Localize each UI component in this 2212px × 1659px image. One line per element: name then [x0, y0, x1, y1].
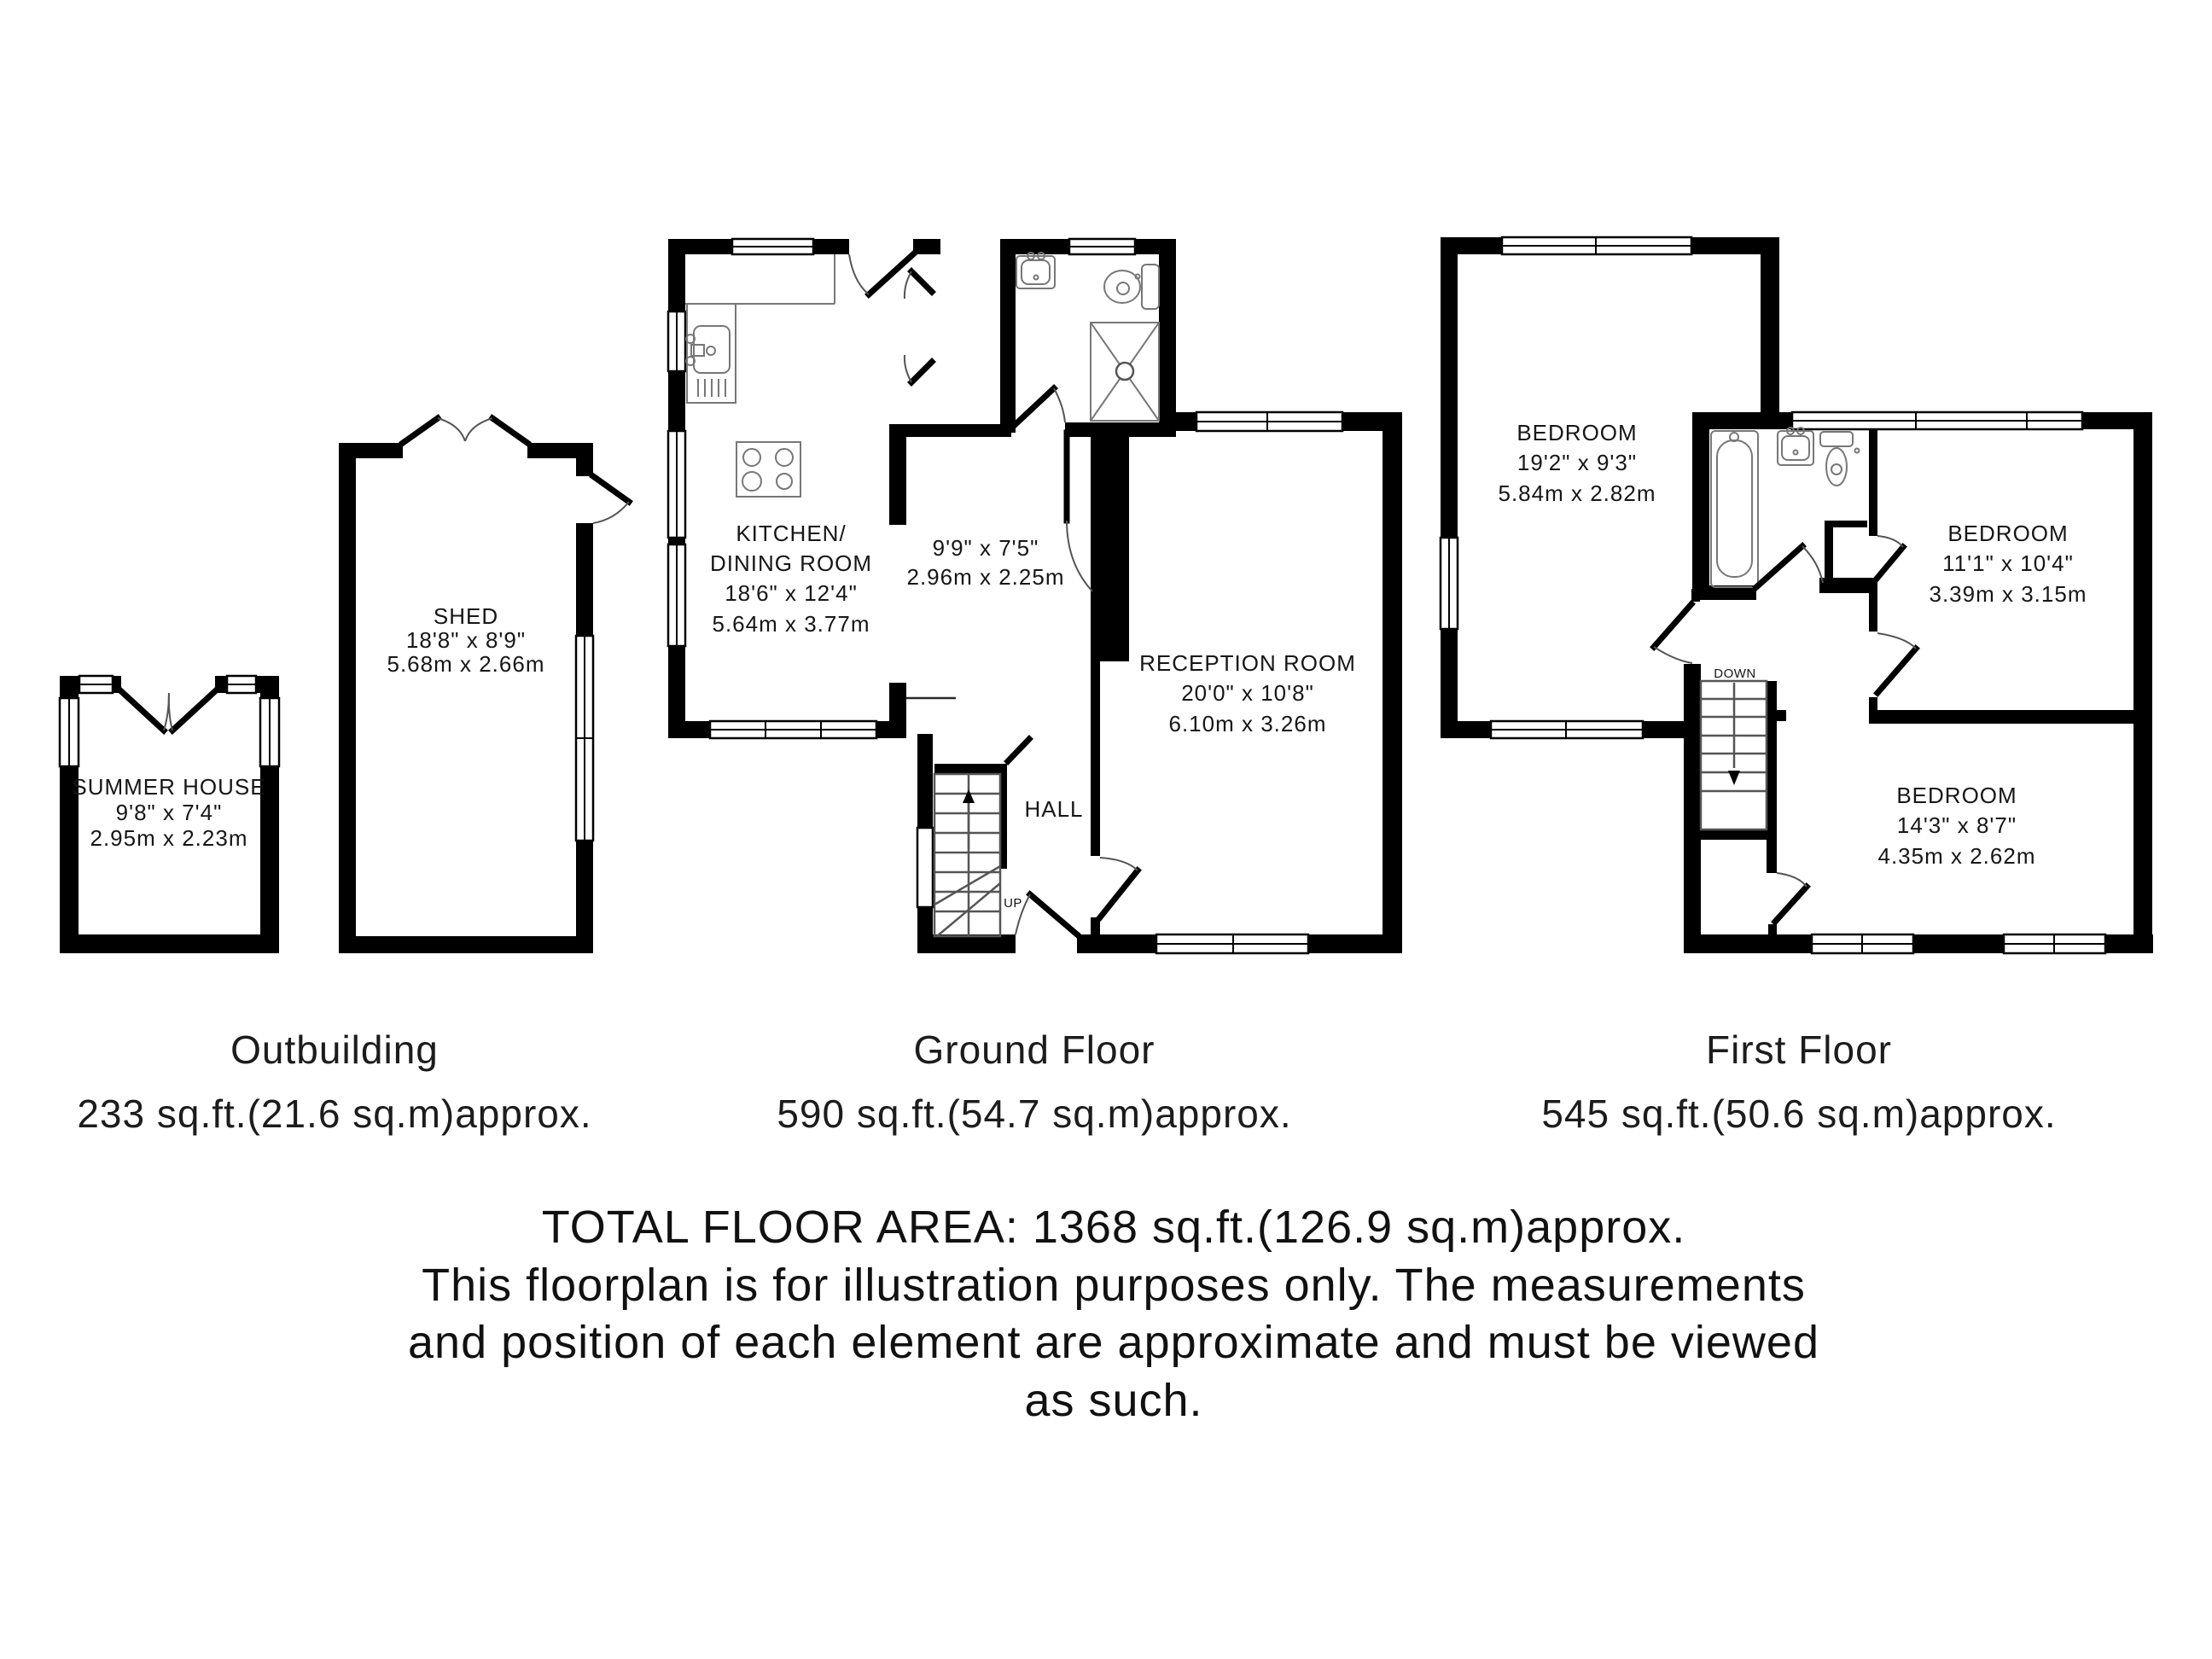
- double-door-icon: [121, 691, 215, 731]
- summer-house: SUMMER HOUSE 9'8" x 7'4" 2.95m x 2.23m: [60, 676, 279, 953]
- room-dims-metric: 6.10m x 3.26m: [1169, 711, 1327, 736]
- ground-floor: KITCHEN/ DINING ROOM 18'6" x 12'4" 5.64m…: [668, 239, 1402, 953]
- up-arrow-icon: [963, 789, 975, 849]
- room-dims-imperial: 19'2" x 9'3": [1517, 450, 1637, 475]
- store-room-label: 9'9" x 7'5" 2.96m x 2.25m: [907, 535, 1065, 590]
- shower-icon: [1091, 323, 1159, 421]
- room-dims-imperial: 9'9" x 7'5": [933, 535, 1039, 561]
- total-floor-area: TOTAL FLOOR AREA: 1368 sq.ft.(126.9 sq.m…: [542, 1202, 1686, 1253]
- disclaimer-line-2: and position of each element are approxi…: [408, 1317, 1819, 1368]
- bedroom-1-label: BEDROOM 19'2" x 9'3" 5.84m x 2.82m: [1499, 420, 1656, 506]
- summer-house-label: SUMMER HOUSE 9'8" x 7'4" 2.95m x 2.23m: [72, 774, 265, 851]
- room-dims-metric: 2.96m x 2.25m: [907, 564, 1065, 590]
- bedroom-2-label: BEDROOM 11'1" x 10'4" 3.39m x 3.15m: [1930, 521, 2087, 607]
- kitchen-label: KITCHEN/ DINING ROOM 18'6" x 12'4" 5.64m…: [710, 521, 872, 637]
- room-dims-imperial: 11'1" x 10'4": [1942, 550, 2074, 576]
- stove-icon: [736, 442, 800, 497]
- room-dims-metric: 2.95m x 2.23m: [90, 825, 248, 851]
- toilet-icon: [1820, 432, 1860, 486]
- basin-icon: [1016, 253, 1055, 288]
- bathroom-fixtures: [1016, 253, 1159, 421]
- stairs-up: [934, 774, 1000, 936]
- room-name: DINING ROOM: [710, 550, 872, 576]
- shed-label: SHED 18'8" x 8'9" 5.68m x 2.66m: [387, 603, 545, 677]
- down-label: DOWN: [1714, 667, 1756, 681]
- disclaimer-line-1: This floorplan is for illustration purpo…: [422, 1260, 1806, 1311]
- bathtub-icon: [1711, 431, 1758, 587]
- up-label: UP: [1004, 896, 1022, 911]
- room-dims-metric: 3.39m x 3.15m: [1930, 581, 2087, 607]
- room-name: BEDROOM: [1947, 521, 2068, 546]
- room-name: BEDROOM: [1896, 783, 2017, 808]
- bedroom-3-label: BEDROOM 14'3" x 8'7" 4.35m x 2.62m: [1878, 783, 2036, 869]
- floorplan-canvas: SUMMER HOUSE 9'8" x 7'4" 2.95m x 2.23m: [0, 0, 2212, 1659]
- shed-window: [576, 636, 593, 841]
- room-dims-imperial: 9'8" x 7'4": [116, 800, 223, 825]
- room-dims-metric: 4.35m x 2.62m: [1878, 843, 2036, 869]
- shed-side-door-icon: [593, 476, 629, 523]
- ground-floor-area: 590 sq.ft.(54.7 sq.m)approx.: [777, 1091, 1291, 1136]
- first-floor-caption: First Floor: [1706, 1027, 1892, 1072]
- room-dims-metric: 5.64m x 3.77m: [713, 611, 870, 637]
- room-name: SUMMER HOUSE: [72, 774, 265, 800]
- room-name: RECEPTION ROOM: [1139, 650, 1356, 676]
- shed-double-door-icon: [403, 418, 527, 443]
- room-name: BEDROOM: [1516, 420, 1637, 445]
- floor-captions: Outbuilding 233 sq.ft.(21.6 sq.m)approx.…: [77, 1027, 2056, 1136]
- shed: SHED 18'8" x 8'9" 5.68m x 2.66m: [339, 418, 629, 953]
- stairs-down: [1701, 681, 1767, 829]
- ground-floor-caption: Ground Floor: [913, 1027, 1155, 1072]
- shed-walls: [339, 443, 593, 953]
- room-name: KITCHEN/: [736, 521, 846, 546]
- hall-label: HALL: [1024, 796, 1083, 822]
- first-floor: BEDROOM 19'2" x 9'3" 5.84m x 2.82m BEDRO…: [1441, 237, 2153, 953]
- room-dims-imperial: 14'3" x 8'7": [1897, 812, 2017, 838]
- reception-label: RECEPTION ROOM 20'0" x 10'8" 6.10m x 3.2…: [1139, 650, 1356, 736]
- room-dims-metric: 5.84m x 2.82m: [1499, 480, 1656, 506]
- toilet-icon: [1104, 265, 1159, 309]
- room-name: SHED: [434, 603, 498, 629]
- kitchen-sink-icon: [685, 254, 835, 403]
- outbuilding-area: 233 sq.ft.(21.6 sq.m)approx.: [77, 1091, 591, 1136]
- room-dims-imperial: 20'0" x 10'8": [1181, 680, 1314, 706]
- room-dims-metric: 5.68m x 2.66m: [387, 651, 545, 677]
- basin-icon: [1778, 428, 1813, 465]
- footer-text: TOTAL FLOOR AREA: 1368 sq.ft.(126.9 sq.m…: [408, 1202, 1819, 1426]
- disclaimer-line-3: as such.: [1024, 1375, 1202, 1426]
- first-floor-area: 545 sq.ft.(50.6 sq.m)approx.: [1541, 1091, 2056, 1136]
- room-dims-imperial: 18'6" x 12'4": [725, 580, 858, 606]
- room-dims-imperial: 18'8" x 8'9": [406, 627, 526, 653]
- summer-house-windows: [60, 676, 279, 766]
- outbuilding-caption: Outbuilding: [230, 1027, 439, 1072]
